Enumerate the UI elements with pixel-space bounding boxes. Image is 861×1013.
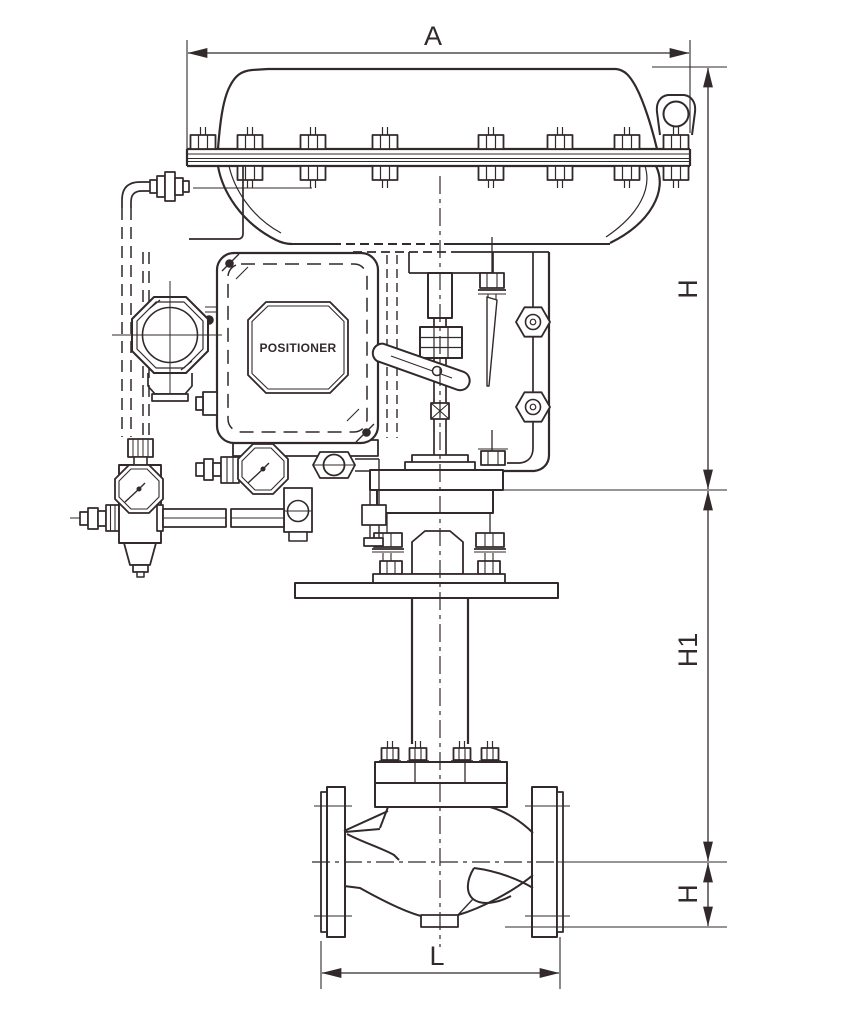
stem-connector [420, 327, 462, 358]
supply-gauge [238, 444, 288, 494]
yoke-boss [516, 392, 550, 421]
yoke-base [295, 470, 558, 744]
yoke-stud-top [478, 237, 506, 302]
yoke-boss [516, 307, 550, 336]
yoke-stud-bottom [478, 430, 508, 465]
valve-dimension-drawing: A H H1 H L POSITIONER [0, 0, 861, 1013]
regulator-knob [128, 439, 153, 465]
supply-pipe [157, 505, 284, 531]
drawing-canvas: A H H1 H L POSITIONER [0, 0, 861, 1013]
air-tube-elbow [122, 182, 150, 208]
mounting-plate [295, 583, 558, 598]
actuator-upper-case [218, 69, 657, 149]
dim-label-l: L [429, 941, 444, 971]
diaphragm-actuator [122, 69, 695, 244]
dim-label-a: A [424, 21, 442, 51]
air-fitting [150, 172, 189, 201]
base-stud-right [474, 513, 506, 574]
dim-label-h-top: H [673, 279, 703, 299]
filter-bowl [124, 543, 156, 577]
gauge-manifold [196, 440, 386, 546]
positioner-label: POSITIONER [259, 341, 336, 355]
manifold-fittings [196, 457, 239, 483]
packing-housing [412, 531, 463, 574]
upper-plate [373, 574, 505, 583]
regulator-gauge [115, 465, 163, 513]
pressure-gauge-large [112, 281, 222, 401]
dim-label-h-bottom: H [673, 884, 703, 904]
globe-valve-body [314, 741, 570, 937]
travel-scale [487, 297, 497, 386]
actuator-flange [187, 149, 690, 166]
lifting-eyebolt [657, 95, 695, 135]
union-fitting [313, 452, 355, 478]
dim-label-h1: H1 [673, 633, 703, 668]
actuator-lower-case [218, 166, 660, 244]
cable-entry [196, 392, 217, 415]
bonnet-flange [375, 762, 507, 807]
